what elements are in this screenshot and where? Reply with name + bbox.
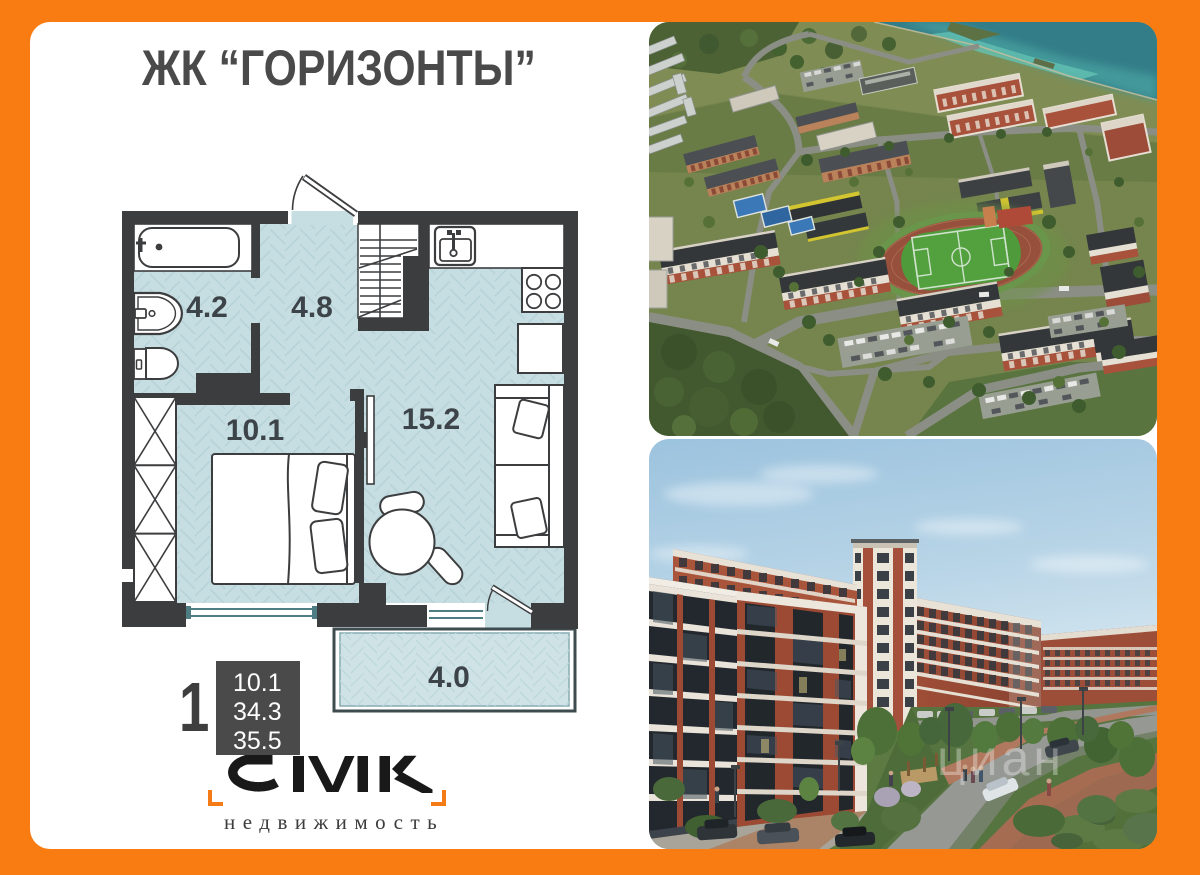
svg-text:10.1: 10.1: [226, 414, 284, 447]
svg-text:4.2: 4.2: [186, 291, 228, 324]
svg-text:4.8: 4.8: [291, 291, 333, 324]
svg-text:4.0: 4.0: [428, 661, 470, 694]
svg-text:циан: циан: [937, 730, 1065, 786]
svg-text:15.2: 15.2: [402, 403, 460, 436]
